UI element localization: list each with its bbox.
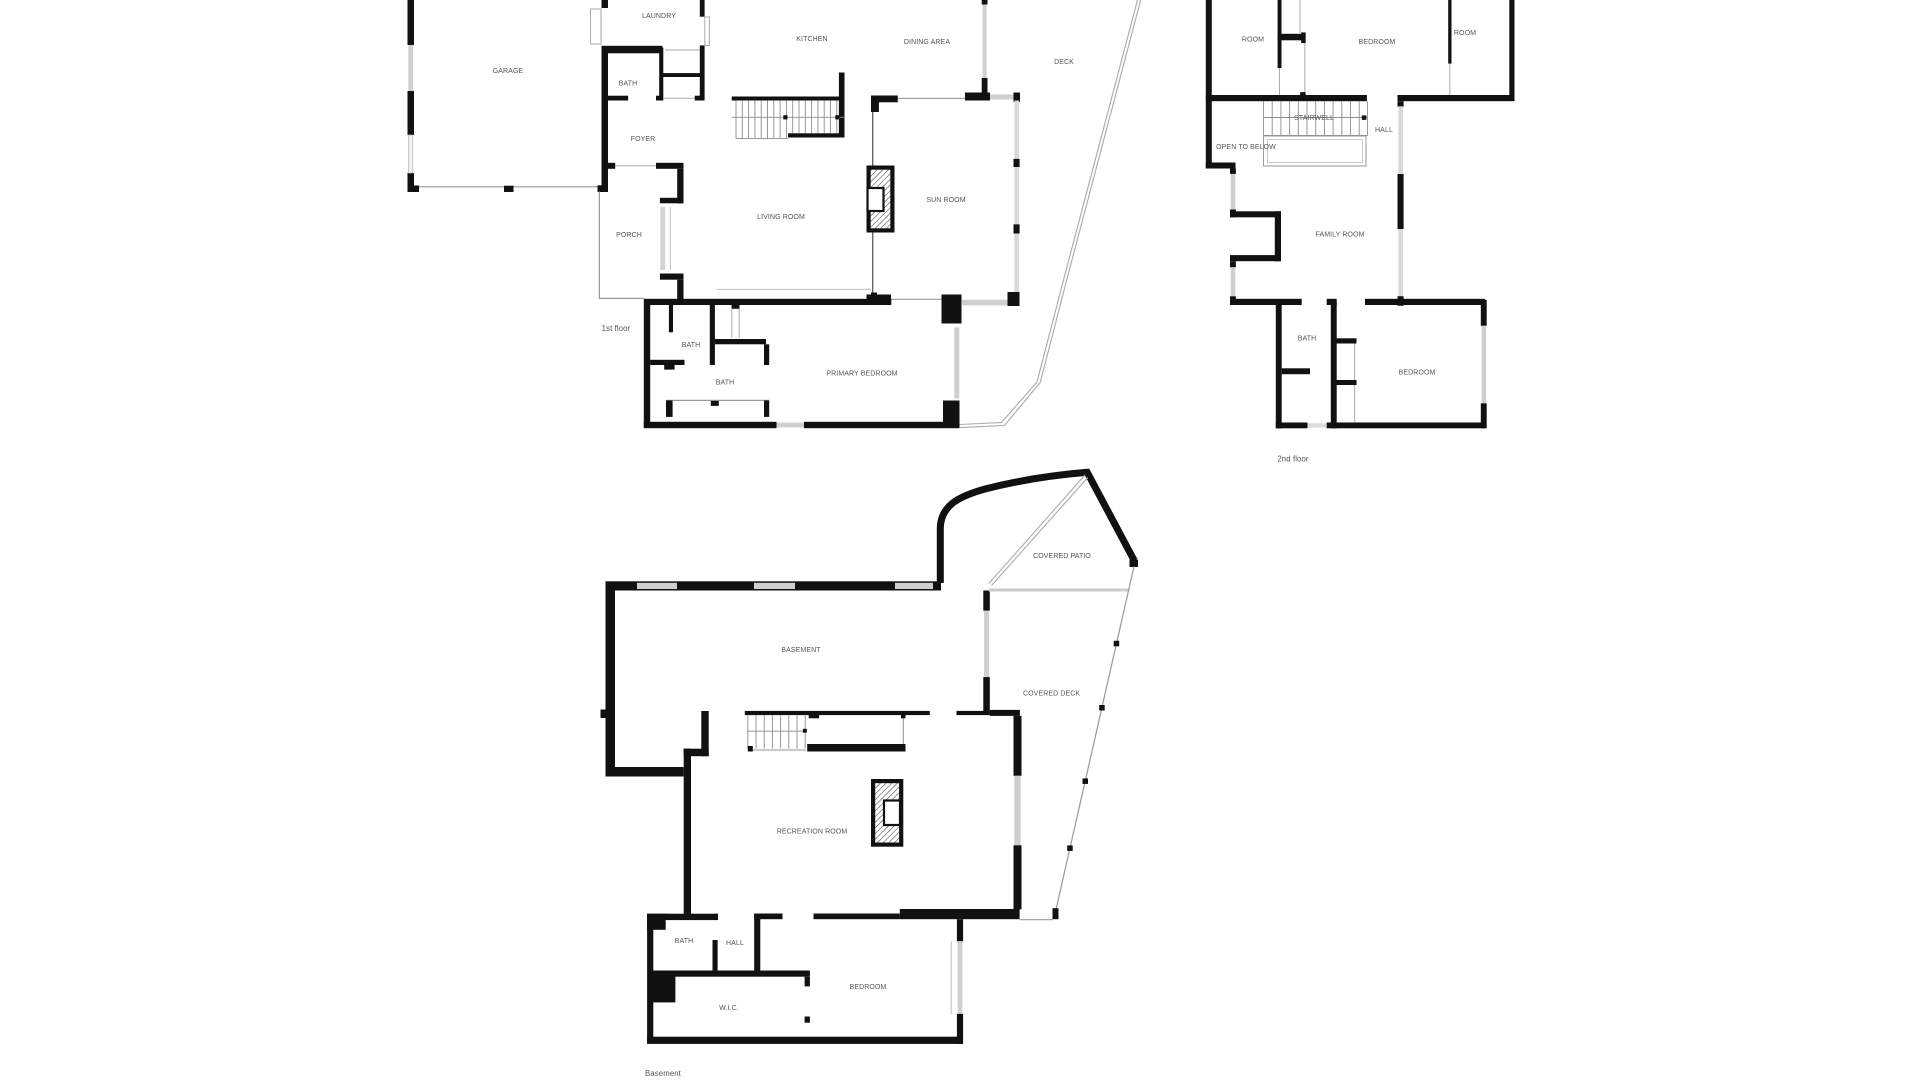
svg-text:COVERED DECK: COVERED DECK bbox=[1023, 690, 1080, 697]
svg-text:W.I.C.: W.I.C. bbox=[719, 1005, 739, 1012]
svg-text:BASEMENT: BASEMENT bbox=[781, 647, 821, 654]
svg-text:KITCHEN: KITCHEN bbox=[796, 36, 827, 43]
svg-text:SUN ROOM: SUN ROOM bbox=[926, 197, 965, 204]
svg-text:ROOM: ROOM bbox=[1242, 37, 1264, 44]
svg-text:BEDROOM: BEDROOM bbox=[850, 984, 887, 991]
svg-text:2nd floor: 2nd floor bbox=[1277, 454, 1309, 463]
svg-text:BATH: BATH bbox=[1298, 336, 1317, 343]
svg-text:HALL: HALL bbox=[726, 940, 744, 947]
svg-text:DINING AREA: DINING AREA bbox=[904, 39, 950, 46]
svg-text:PORCH: PORCH bbox=[616, 232, 642, 239]
svg-text:COVERED PATIO: COVERED PATIO bbox=[1033, 553, 1091, 560]
svg-text:HALL: HALL bbox=[1375, 127, 1393, 134]
svg-text:BEDROOM: BEDROOM bbox=[1399, 370, 1436, 377]
svg-text:ROOM: ROOM bbox=[1454, 30, 1476, 37]
svg-text:FOYER: FOYER bbox=[631, 136, 656, 143]
svg-text:BATH: BATH bbox=[675, 938, 694, 945]
svg-text:DECK: DECK bbox=[1054, 59, 1074, 66]
svg-text:GARAGE: GARAGE bbox=[493, 68, 524, 75]
svg-text:PRIMARY BEDROOM: PRIMARY BEDROOM bbox=[826, 371, 897, 378]
svg-text:FAMILY ROOM: FAMILY ROOM bbox=[1315, 231, 1364, 238]
svg-text:BATH: BATH bbox=[682, 342, 701, 349]
svg-text:OPEN TO BELOW: OPEN TO BELOW bbox=[1216, 144, 1276, 151]
svg-text:LAUNDRY: LAUNDRY bbox=[642, 13, 676, 20]
svg-text:BEDROOM: BEDROOM bbox=[1359, 39, 1396, 46]
svg-text:BATH: BATH bbox=[619, 81, 638, 88]
svg-text:1st floor: 1st floor bbox=[602, 324, 631, 333]
svg-text:BATH: BATH bbox=[716, 380, 735, 387]
svg-text:STAIRWELL: STAIRWELL bbox=[1294, 115, 1334, 122]
svg-text:Basement: Basement bbox=[645, 1069, 682, 1078]
svg-text:RECREATION ROOM: RECREATION ROOM bbox=[777, 829, 848, 836]
svg-text:LIVING ROOM: LIVING ROOM bbox=[757, 214, 805, 221]
